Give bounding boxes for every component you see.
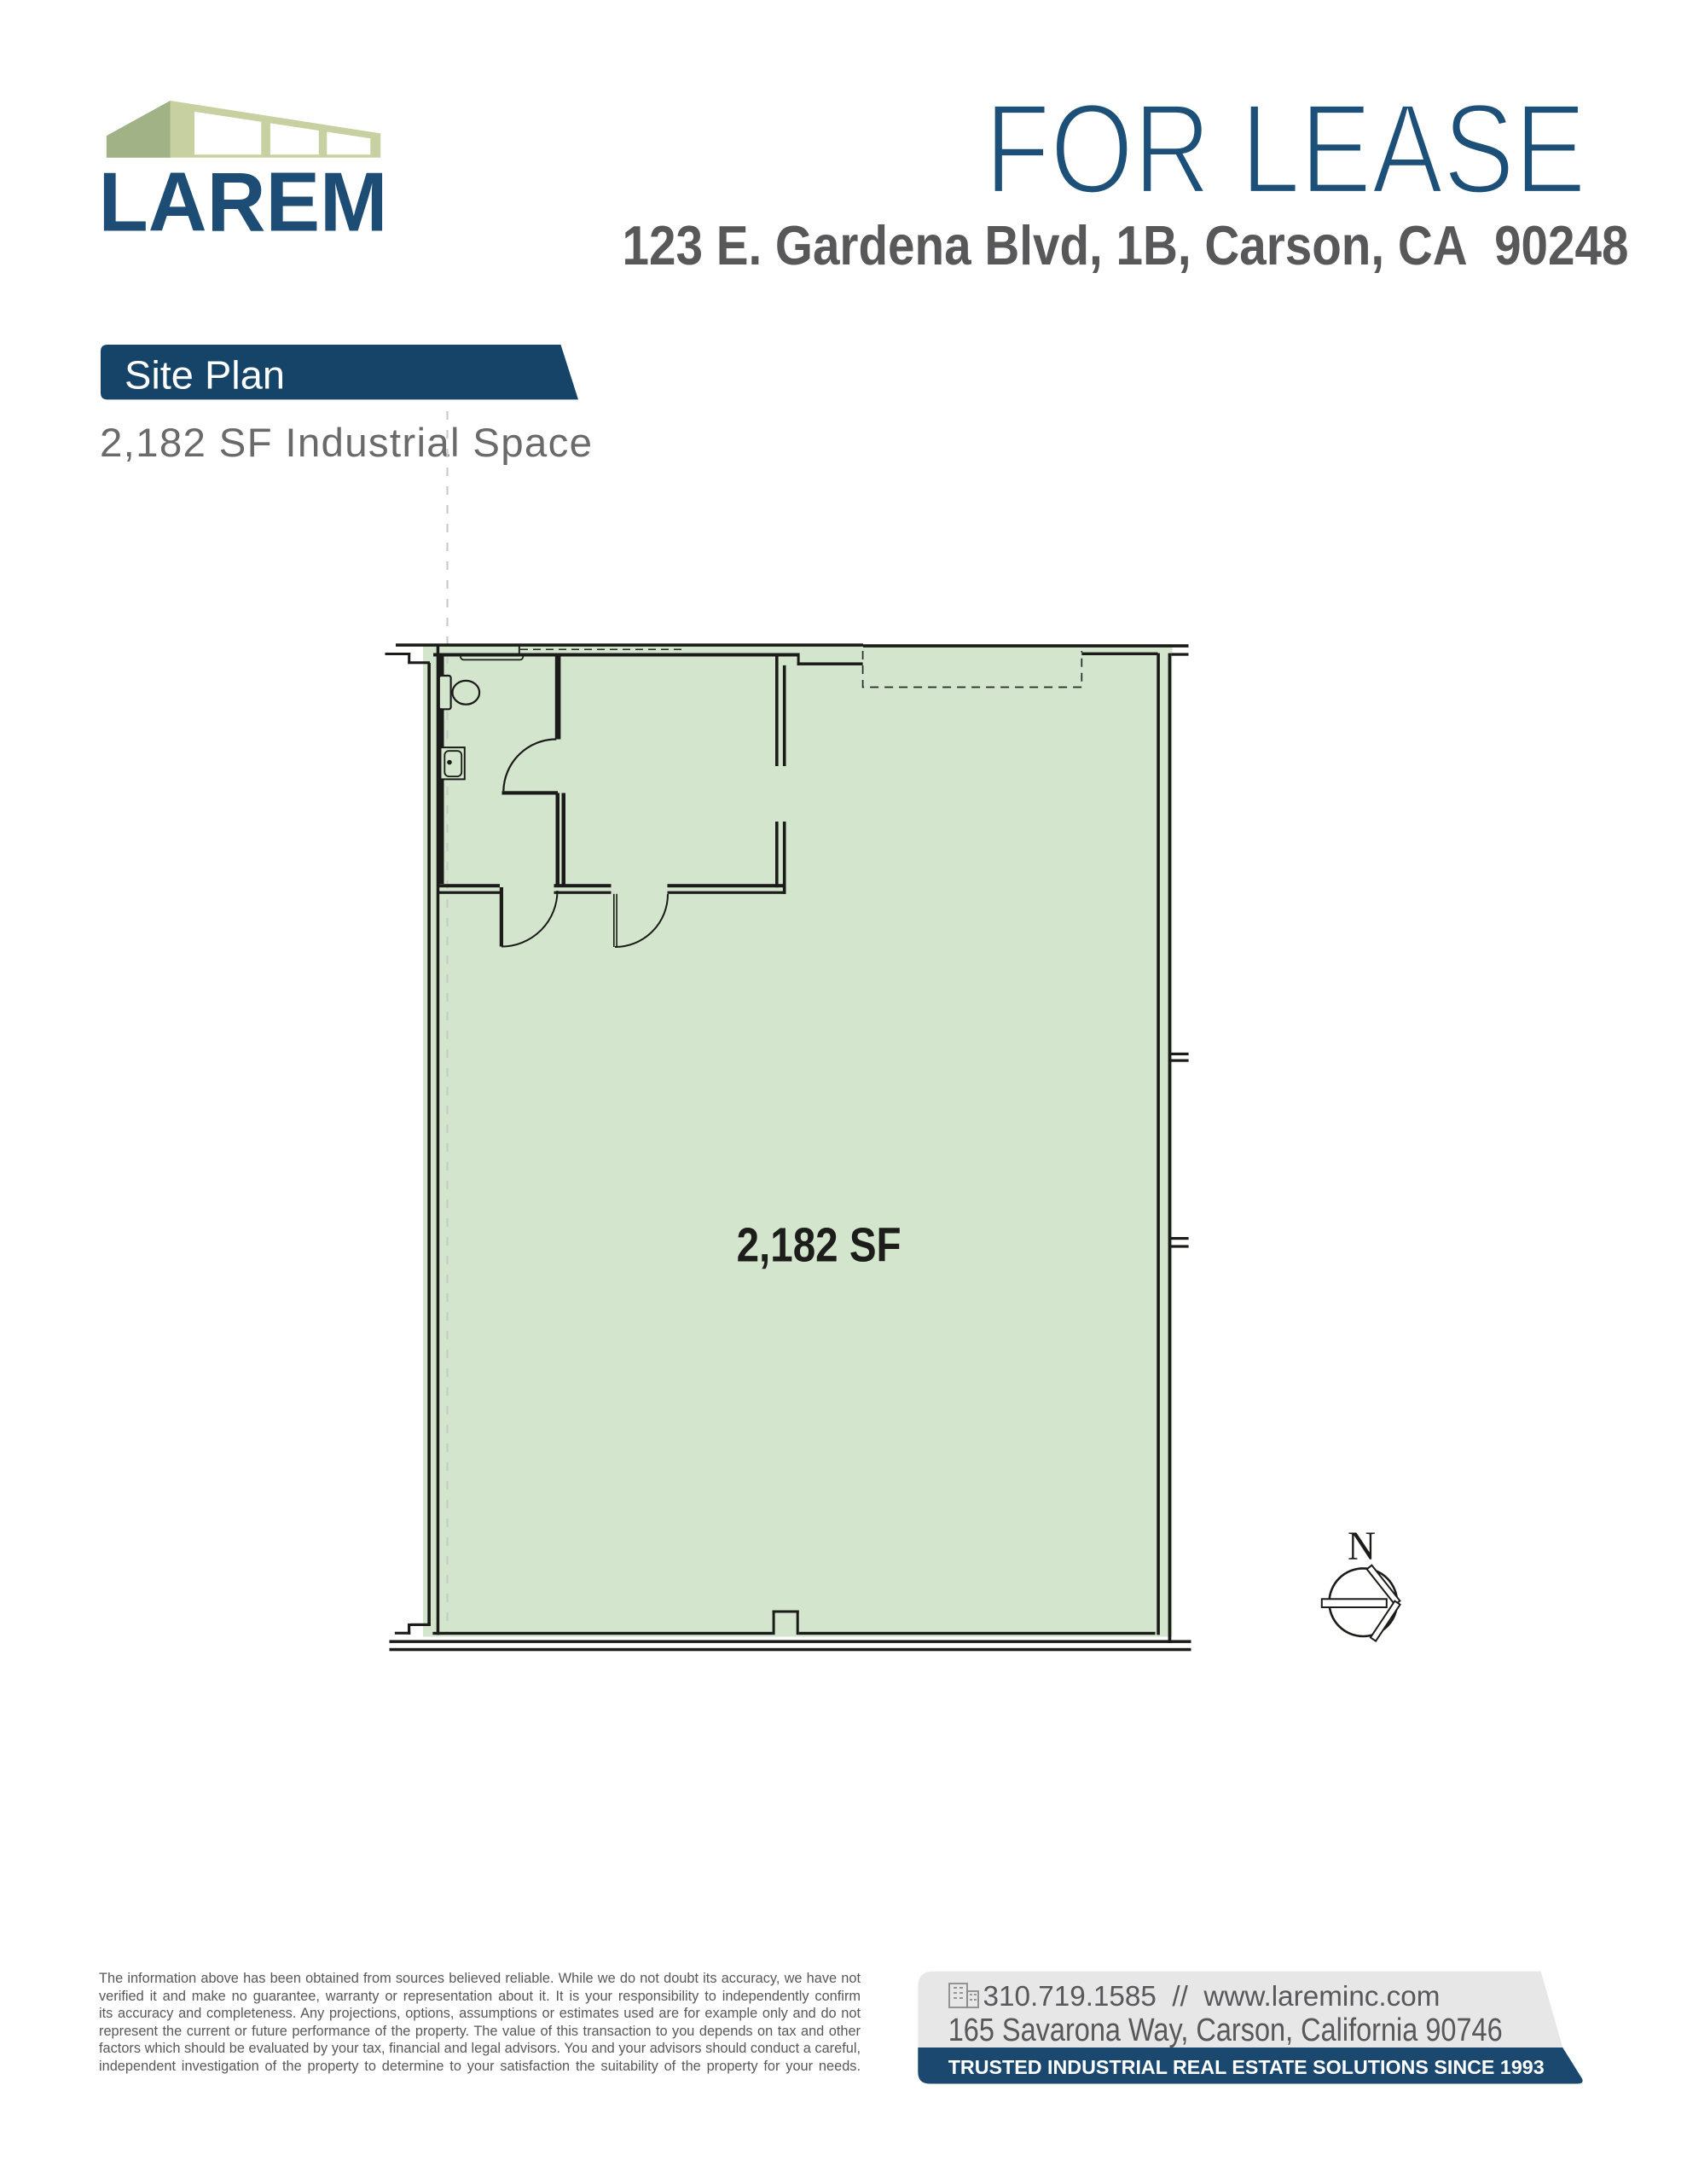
svg-text:LAREM: LAREM bbox=[99, 155, 388, 249]
svg-text:310.719.1585 // www.lareminc: 310.719.1585 // www.lareminc.com bbox=[983, 1980, 1441, 2012]
svg-text:Site Plan: Site Plan bbox=[125, 353, 285, 398]
svg-text:165 Savarona Way, Carson, Cali: 165 Savarona Way, Carson, California 907… bbox=[948, 2013, 1503, 2048]
svg-text:N: N bbox=[1348, 1524, 1376, 1569]
svg-text:123 E. Gardena Blvd, 1B, Carso: 123 E. Gardena Blvd, 1B, Carson, CA 9024… bbox=[623, 214, 1629, 276]
svg-text:2,182 SF Industrial Space: 2,182 SF Industrial Space bbox=[100, 421, 592, 466]
svg-text:FOR LEASE: FOR LEASE bbox=[985, 77, 1586, 220]
svg-text:TRUSTED INDUSTRIAL REAL ESTATE: TRUSTED INDUSTRIAL REAL ESTATE SOLUTIONS… bbox=[948, 2056, 1545, 2078]
svg-text:2,182 SF: 2,182 SF bbox=[737, 1217, 901, 1271]
